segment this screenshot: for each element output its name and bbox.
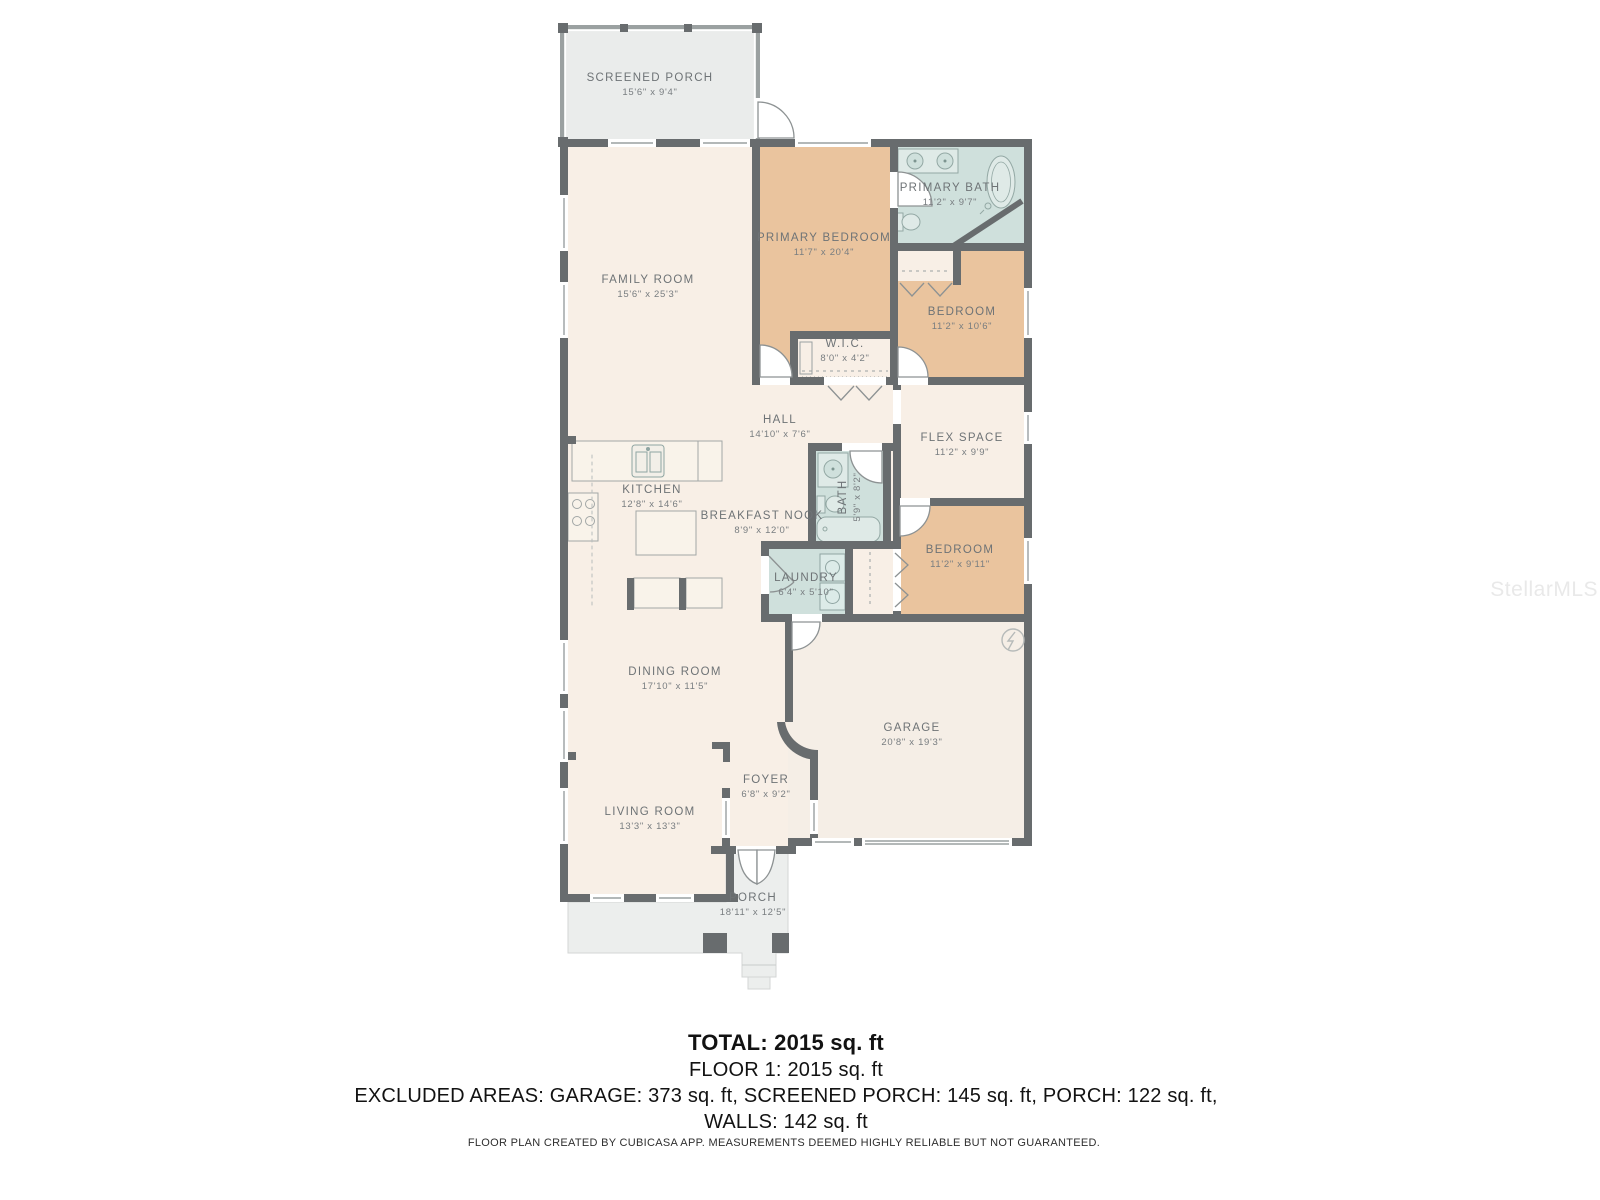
stove — [568, 493, 598, 541]
laundry-east-wall — [845, 549, 853, 622]
excluded-areas-text: EXCLUDED AREAS: GARAGE: 373 sq. ft, SCRE… — [0, 1085, 1572, 1108]
room-label-foyer: FOYER 6'8" x 9'2" — [741, 774, 790, 800]
room-label-living-room: LIVING ROOM 13'3" x 13'3" — [605, 806, 696, 832]
room-label-screened-porch: SCREENED PORCH 15'6" x 9'4" — [587, 72, 714, 98]
room-label-laundry: LAUNDRY 6'4" x 5'10" — [774, 572, 838, 598]
cabinet — [634, 578, 680, 608]
room-label-garage: GARAGE 20'8" x 19'3" — [881, 722, 942, 748]
kitchen-island — [636, 511, 696, 555]
room-name: SCREENED PORCH — [587, 72, 714, 84]
room-label-flex-space: FLEX SPACE 11'2" x 9'9" — [920, 432, 1003, 458]
cabinet — [686, 578, 722, 608]
porch-column — [772, 933, 789, 953]
exterior-wall-left — [560, 139, 568, 902]
bath-east-wall — [883, 443, 891, 549]
stellar-mls-watermark: StellarMLS — [1490, 578, 1598, 602]
room-label-dining-room: DINING ROOM 17'10" x 11'5" — [628, 666, 722, 692]
room-label-porch: PORCH 18'11" x 12'5" — [720, 892, 786, 918]
bedroom-top-closet-fill — [898, 251, 953, 281]
living-wall-bottom — [560, 894, 738, 902]
wall-stub — [712, 742, 730, 749]
laundry-north-wall — [761, 541, 901, 549]
floor-plan-page: SCREENED PORCH 15'6" x 9'4" FAMILY ROOM … — [0, 0, 1600, 1200]
porch-door-swing — [758, 102, 794, 138]
room-label-breakfast-nook: BREAKFAST NOOK 8'9" x 12'0" — [701, 510, 824, 536]
floor-plan-canvas — [0, 0, 1600, 1200]
disclaimer-text: FLOOR PLAN CREATED BY CUBICASA APP. MEAS… — [0, 1137, 1568, 1149]
family-primary-wall — [752, 147, 760, 377]
room-label-bedroom-top: BEDROOM 11'2" x 10'6" — [928, 306, 997, 332]
room-label-primary-bath: PRIMARY BATH 11'2" x 9'7" — [900, 182, 1001, 208]
room-label-family-room: FAMILY ROOM 15'6" x 25'3" — [601, 274, 694, 300]
room-label-hall: HALL 14'10" x 7'6" — [749, 414, 810, 440]
room-label-kitchen: KITCHEN 12'8" x 14'6" — [621, 484, 682, 510]
room-label-primary-bedroom: PRIMARY BEDROOM 11'7" x 20'4" — [757, 232, 891, 258]
room-label-bedroom-mid: BEDROOM 11'2" x 9'11" — [926, 544, 995, 570]
room-label-wic: W.I.C. 8'0" x 4'2" — [820, 338, 869, 364]
total-area-text: TOTAL: 2015 sq. ft — [0, 1030, 1572, 1056]
porch-column — [703, 933, 727, 953]
room-dims: 15'6" x 9'4" — [587, 87, 714, 98]
area-summary: TOTAL: 2015 sq. ft FLOOR 1: 2015 sq. ft … — [0, 1030, 1572, 1134]
floor-area-text: FLOOR 1: 2015 sq. ft — [0, 1059, 1572, 1082]
walls-area-text: WALLS: 142 sq. ft — [0, 1111, 1572, 1134]
room-label-bath: BATH 5'9" x 8'2" — [837, 472, 863, 521]
